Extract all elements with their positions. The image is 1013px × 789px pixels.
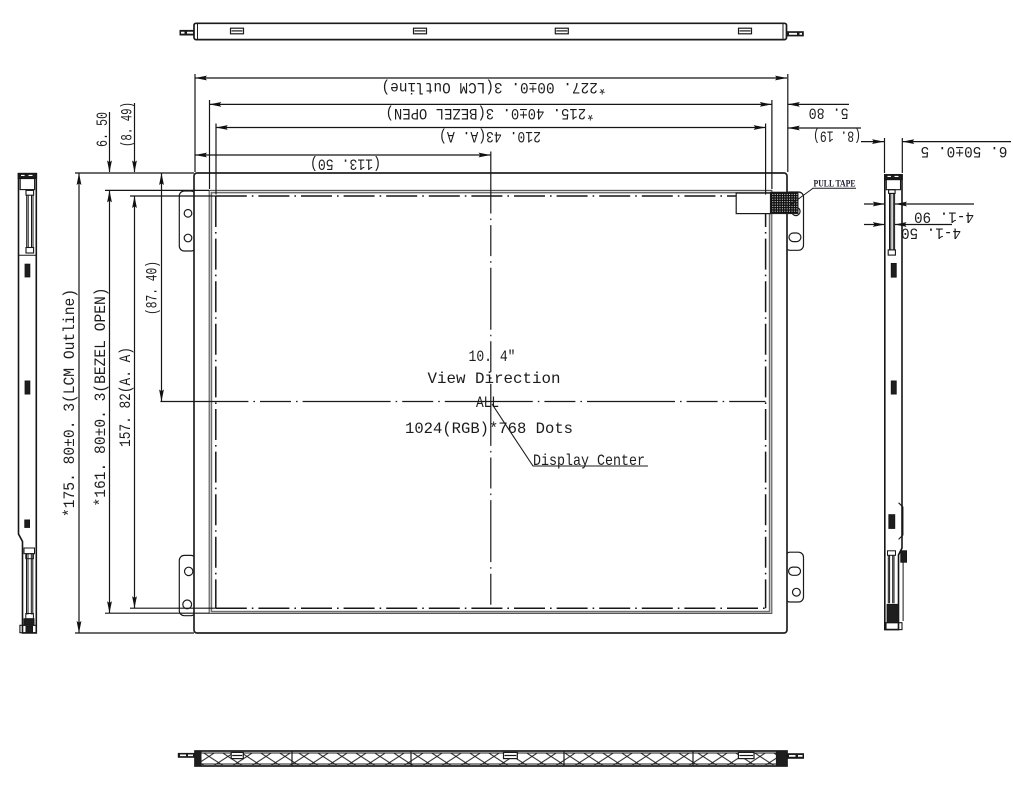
svg-text:*227. 00±0. 3(LCM Outline): *227. 00±0. 3(LCM Outline) xyxy=(382,78,607,96)
svg-text:4-1. 90: 4-1. 90 xyxy=(914,207,974,225)
svg-text:157. 82(A. A): 157. 82(A. A) xyxy=(117,347,135,447)
svg-text:10. 4″: 10. 4″ xyxy=(469,348,516,366)
svg-text:1024(RGB)*768 Dots: 1024(RGB)*768 Dots xyxy=(405,420,573,438)
svg-text:PULL TAPE: PULL TAPE xyxy=(814,180,856,190)
svg-text:View Direction: View Direction xyxy=(428,370,561,388)
svg-text:6. 50: 6. 50 xyxy=(94,112,112,147)
svg-text:*215. 40±0. 3(BEZEL OPEN): *215. 40±0. 3(BEZEL OPEN) xyxy=(386,104,595,122)
svg-text:*161. 80±0. 3(BEZEL OPEN): *161. 80±0. 3(BEZEL OPEN) xyxy=(92,288,110,507)
svg-text:(8. 19): (8. 19) xyxy=(813,126,861,144)
svg-text:4-1. 50: 4-1. 50 xyxy=(901,224,961,242)
svg-text:(8. 49): (8. 49) xyxy=(119,102,137,147)
svg-text:5. 80: 5. 80 xyxy=(809,103,849,121)
svg-text:6. 50±0. 5: 6. 50±0. 5 xyxy=(921,142,1008,160)
svg-text:(113. 50): (113. 50) xyxy=(310,154,381,172)
svg-text:(87. 40): (87. 40) xyxy=(144,261,162,315)
svg-text:210. 43(A. A): 210. 43(A. A) xyxy=(439,127,541,145)
svg-text:Display Center: Display Center xyxy=(533,452,645,470)
svg-text:*175. 80±0. 3(LCM Outline): *175. 80±0. 3(LCM Outline) xyxy=(61,289,79,517)
